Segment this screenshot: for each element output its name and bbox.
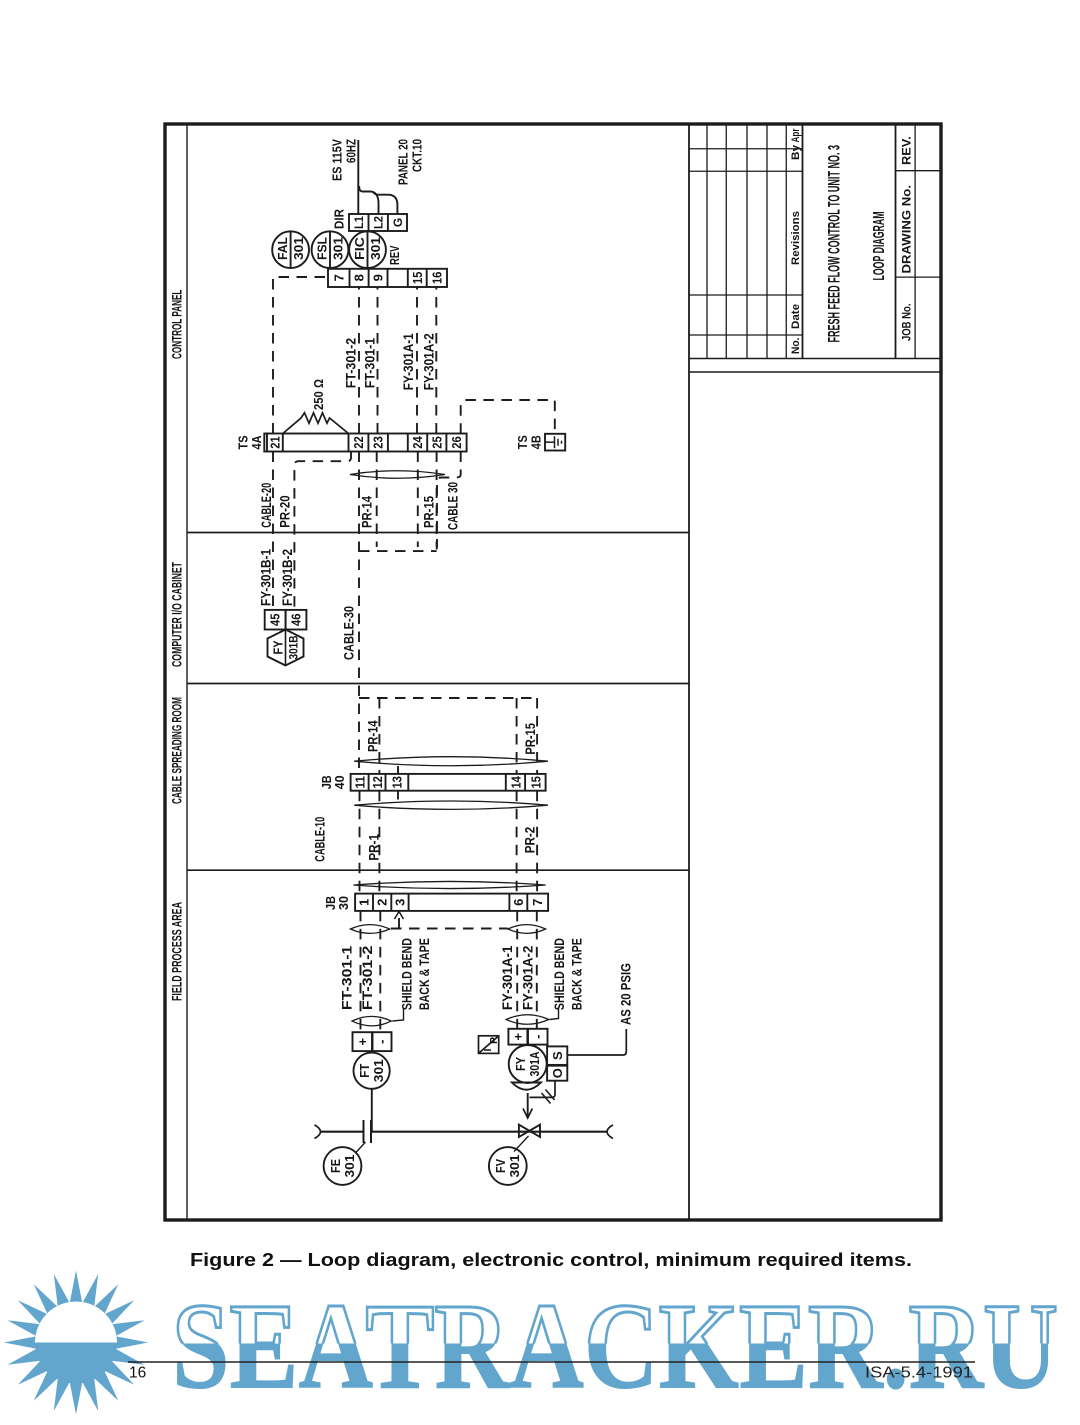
- svg-text:Figure 2 — Loop diagram, elect: Figure 2 — Loop diagram, electronic cont…: [190, 1249, 912, 1270]
- svg-text:16: 16: [129, 1365, 146, 1382]
- svg-text:ISA-5.4-1991: ISA-5.4-1991: [865, 1365, 973, 1382]
